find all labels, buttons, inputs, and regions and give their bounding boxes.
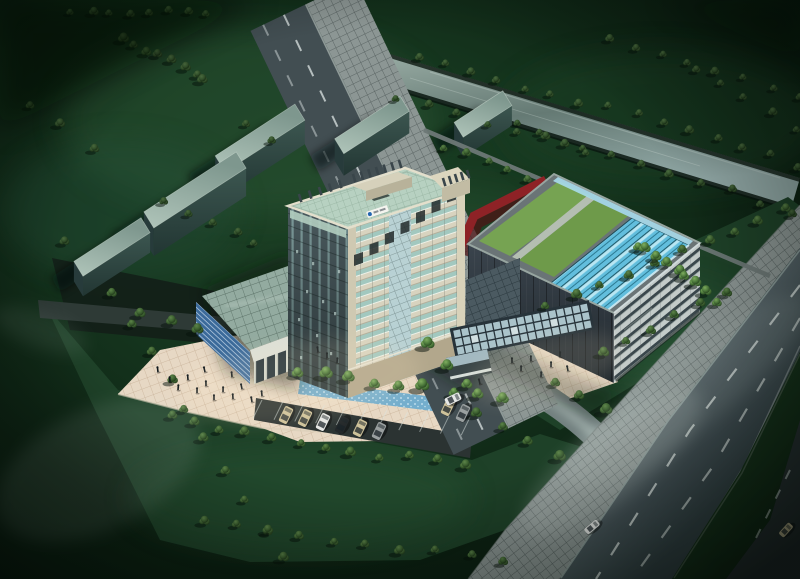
vignette xyxy=(0,0,800,579)
vignette-layer xyxy=(0,0,800,579)
architectural-rendering: Night aerial rendering of a high-rise of… xyxy=(0,0,800,579)
scene-canvas: Night aerial rendering of a high-rise of… xyxy=(0,0,800,579)
